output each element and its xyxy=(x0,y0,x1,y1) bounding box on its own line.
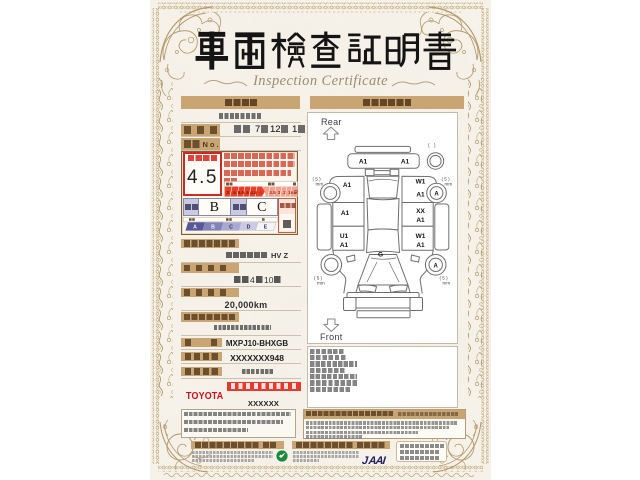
svg-text:A1: A1 xyxy=(340,210,349,217)
svg-text:6: 6 xyxy=(233,190,236,195)
svg-text:W1: W1 xyxy=(415,179,425,186)
svg-text:( ): ( ) xyxy=(428,143,436,149)
svg-text:Rear: Rear xyxy=(321,117,342,127)
svg-text:mm: mm xyxy=(315,181,323,186)
svg-text:2: 2 xyxy=(283,190,286,196)
svg-text:mm: mm xyxy=(444,181,452,186)
svg-text:Front: Front xyxy=(320,332,343,342)
svg-text:3: 3 xyxy=(277,190,280,196)
svg-text:A1: A1 xyxy=(400,159,409,166)
svg-text:S: S xyxy=(226,190,229,195)
svg-text:A: A xyxy=(433,263,438,269)
svg-text:C: C xyxy=(229,225,233,231)
svg-text:A: A xyxy=(193,225,197,231)
svg-text:B: B xyxy=(211,225,215,231)
svg-text:A1: A1 xyxy=(339,242,348,249)
svg-text:U1: U1 xyxy=(339,233,348,240)
svg-text:5.5: 5.5 xyxy=(237,190,244,195)
svg-text:mm: mm xyxy=(442,280,450,285)
svg-text:5: 5 xyxy=(246,190,249,195)
svg-text:3.5: 3.5 xyxy=(269,190,276,195)
svg-text:A: A xyxy=(434,192,439,198)
svg-text:R: R xyxy=(294,190,298,196)
svg-text:D: D xyxy=(246,225,250,231)
svg-text:A1: A1 xyxy=(416,242,425,249)
svg-text:G: G xyxy=(378,252,383,259)
svg-text:A1: A1 xyxy=(358,159,367,166)
svg-text:A1: A1 xyxy=(416,192,425,199)
svg-text:E: E xyxy=(263,225,267,231)
svg-text:XX: XX xyxy=(416,208,425,215)
svg-text:mm: mm xyxy=(317,280,325,285)
svg-text:4: 4 xyxy=(259,190,262,196)
svg-text:A1: A1 xyxy=(342,182,351,189)
svg-text:4.5: 4.5 xyxy=(250,190,257,195)
svg-text:A1: A1 xyxy=(416,217,425,224)
svg-text:W1: W1 xyxy=(415,233,425,240)
